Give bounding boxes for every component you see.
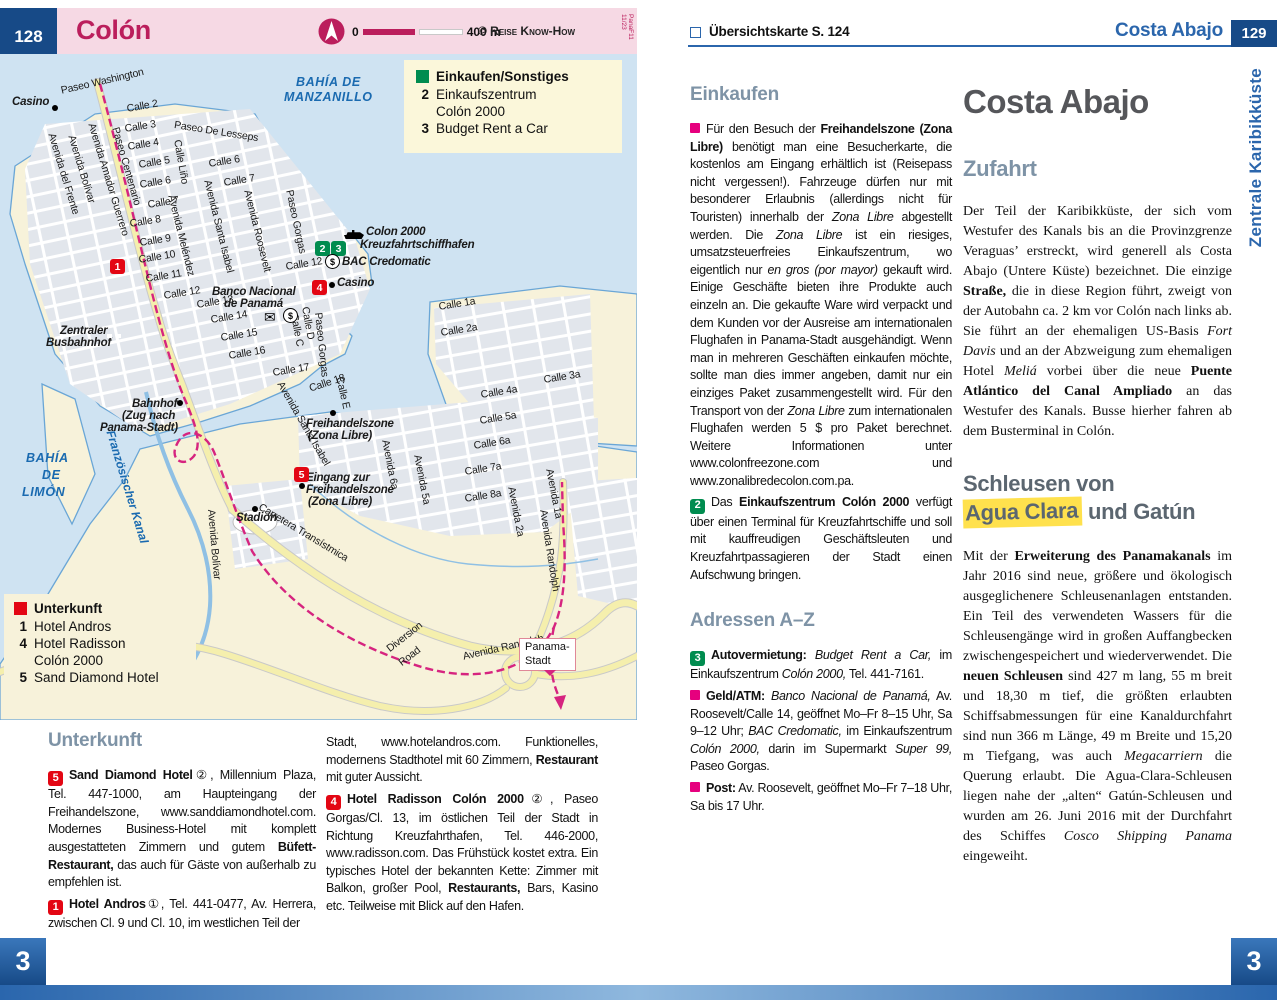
map-marker-1: 1 <box>110 259 125 274</box>
item-marker-5: 5 <box>48 771 63 786</box>
page-number-left: 128 <box>0 8 57 54</box>
bullet-square-icon <box>690 690 700 700</box>
map-label: Calle 3 <box>124 119 157 135</box>
legend-item: 2Einkaufszentrum Colón 2000 <box>416 86 612 120</box>
map-label: Avenida Roosevelt <box>241 189 272 273</box>
map-label: Calle 7a <box>464 461 502 478</box>
einkaufen-column: Einkaufen Für den Besuch der Freihandels… <box>690 84 952 819</box>
map-label: Paseo Gorgas <box>312 312 330 378</box>
map-label: Calle 8a <box>464 488 502 505</box>
poi-dot <box>329 282 335 288</box>
legend-lodging-title: Unterkunft <box>14 600 188 617</box>
map-label: Calle 3a <box>543 369 581 386</box>
map-label: Paseo De Lesseps <box>173 120 259 144</box>
map-label: Avenida 5a <box>411 454 431 506</box>
map-label: Freihandelszone <box>306 484 394 496</box>
item-marker-2: 2 <box>690 499 705 514</box>
paragraph: 3Autovermietung: Budget Rent a Car, im E… <box>690 647 952 684</box>
map-label: Eingang zur <box>306 472 370 484</box>
atm-icon: $ <box>283 308 298 323</box>
right-page-header: Übersichtskarte S. 124 Costa Abajo <box>688 20 1231 47</box>
map-label: Avenida Bolívar <box>205 509 222 580</box>
map-label: Calle Liño <box>171 139 190 185</box>
schleusen-heading: Schleusen von Agua Clara und Gatún <box>963 470 1232 527</box>
map-label: Calle 10 <box>138 249 176 266</box>
map-label: Calle 6 <box>139 175 172 191</box>
post-icon: ✉ <box>264 310 276 324</box>
einkaufen-heading: Einkaufen <box>690 84 952 106</box>
adressen-heading: Adressen A–Z <box>690 610 952 632</box>
map-label: Zentraler <box>60 325 107 337</box>
chapter-title: Costa Abajo <box>963 84 1232 120</box>
overview-map-link: Übersichtskarte S. 124 <box>709 24 849 39</box>
chapter-number-right: 3 <box>1231 938 1277 985</box>
legend-lodging: Unterkunft 1Hotel Andros4Hotel Radisson … <box>4 594 196 694</box>
map-label: Calle 9 <box>139 233 172 249</box>
scale-segment-empty <box>419 29 463 35</box>
poi-dot <box>299 483 305 489</box>
map-label: Road <box>397 645 423 669</box>
paragraph: 2Das Einkaufszentrum Colón 2000 verfügt … <box>690 494 952 584</box>
costa-abajo-column: Costa Abajo Zufahrt Der Teil der Karibik… <box>963 84 1232 867</box>
map-copyright: © Reise Know-How <box>478 24 575 38</box>
bullet-square-icon <box>690 123 700 133</box>
page-number-right: 129 <box>1231 20 1277 47</box>
scale-start-label: 0 <box>352 25 359 39</box>
map-label: Calle 6 <box>208 154 241 170</box>
map-label: Calle 5a <box>479 410 517 427</box>
map-label: Französischer Kanal <box>104 429 150 545</box>
overview-map-icon <box>690 27 701 38</box>
map-label: Calle 7 <box>223 173 256 189</box>
map-label: Carretera Transístmica <box>256 502 349 564</box>
map-label: Calle 2 <box>126 99 159 115</box>
legend-item: 1Hotel Andros <box>14 618 188 635</box>
map-label: Calle 15 <box>220 327 258 344</box>
item-marker-1: 1 <box>48 900 63 915</box>
map-label: Calle 4a <box>480 384 518 401</box>
paragraph: Für den Besuch der Freihandelszone (Zona… <box>690 121 952 490</box>
map-label: Freihandelszone <box>306 418 394 430</box>
map-label: Calle 5 <box>138 155 171 171</box>
map-marker-4: 4 <box>312 280 327 295</box>
map-label: MANZANILLO <box>284 91 373 104</box>
shopping-square-icon <box>416 70 429 83</box>
header-rule <box>688 45 1231 47</box>
map-label: Avenida Randolph <box>537 509 561 592</box>
map-label: Calle 17 <box>272 362 310 379</box>
map-label: BAHÍA <box>26 452 69 465</box>
poi-dot <box>330 410 336 416</box>
map-label: Calle 14 <box>210 309 248 326</box>
north-arrow-icon <box>318 18 345 45</box>
map-label: (Zug nach <box>122 410 175 422</box>
map-label: Paseo Washington <box>60 67 145 97</box>
map-label: Kreuzfahrtschiffhafen <box>360 239 474 251</box>
map-label: Calle 1a <box>438 296 476 313</box>
map-label: Casino <box>12 96 49 108</box>
map-title: Colón <box>76 15 151 46</box>
map-label: Colon 2000 <box>366 226 425 238</box>
ship-icon <box>344 230 364 239</box>
bullet-square-icon <box>690 782 700 792</box>
map-label: Panama-Stadt) <box>100 422 178 434</box>
atm-icon: $ <box>325 254 340 269</box>
paragraph: 4Hotel Radisson Colón 2000②, Paseo Gorga… <box>326 791 598 916</box>
paragraph: Der Teil der Karibikküste, der sich vom … <box>963 202 1232 442</box>
map-label: Avenida 2a <box>505 486 525 538</box>
item-marker-3: 3 <box>690 651 705 666</box>
lodging-square-icon <box>14 602 27 615</box>
map-label: Paseo Gorgas <box>283 189 307 255</box>
legend-shopping-title: Einkaufen/Sonstiges <box>416 68 612 85</box>
map-label: BAC Credomatic <box>342 256 431 268</box>
map-label: Calle 2a <box>440 322 478 339</box>
bottom-chapter-bar <box>0 985 1277 1000</box>
unterkunft-heading: Unterkunft <box>48 730 316 752</box>
map-label: Bahnhof <box>132 398 177 410</box>
unterkunft-column-2: Stadt, www.hotelandros.com. Funktionelle… <box>326 734 598 920</box>
map-edition-code: PanaF11 11/23 <box>620 14 634 54</box>
poi-dot <box>177 400 183 406</box>
map-marker-5: 5 <box>294 467 309 482</box>
paragraph: Stadt, www.hotelandros.com. Funktionelle… <box>326 734 598 787</box>
zufahrt-heading: Zufahrt <box>963 156 1232 182</box>
left-page-header: 128 Colón 0 400 m © Reise Know-How PanaF… <box>0 8 637 54</box>
map-label: Calle 16 <box>228 345 266 362</box>
map-label: BAHÍA DE <box>296 76 361 89</box>
paragraph: Post: Av. Roosevelt, geöffnet Mo–Fr 7–18… <box>690 780 952 815</box>
city-map: BAHÍA DEMANZANILLOBAHÍADELIMÓNFranzösisc… <box>0 54 637 720</box>
map-label: Calle 12 <box>285 256 323 273</box>
paragraph: Geld/ATM: Banco Nacional de Panamá, Av. … <box>690 688 952 776</box>
unterkunft-column-1: Unterkunft 5Sand Diamond Hotel②, Millenn… <box>48 730 316 937</box>
map-label: Casino <box>337 277 374 289</box>
map-label: Calle 4 <box>127 137 160 153</box>
poi-dot <box>52 105 58 111</box>
legend-item: 5Sand Diamond Hotel <box>14 669 188 686</box>
map-marker-2: 2 <box>315 241 330 256</box>
map-label: Avenida 6a <box>379 439 399 491</box>
section-title: Costa Abajo <box>1115 20 1223 42</box>
paragraph: 1Hotel Andros①, Tel. 441-0477, Av. Herre… <box>48 896 316 933</box>
legend-item: 3Budget Rent a Car <box>416 120 612 137</box>
map-label: Calle E <box>333 376 351 410</box>
map-label: LIMÓN <box>22 486 65 499</box>
map-label: Avenida Santa Isabel <box>201 179 235 274</box>
item-marker-4: 4 <box>326 795 341 810</box>
map-label: Calle 8 <box>129 214 162 230</box>
chapter-number-left: 3 <box>0 938 46 985</box>
paragraph: Mit der Erweiterung des Panamakanals im … <box>963 547 1232 867</box>
map-label: Busbahnhof <box>46 337 111 349</box>
scale-segment-filled <box>363 29 415 35</box>
map-label: Calle 6a <box>473 435 511 452</box>
highlighted-text: Agua Clara <box>963 496 1083 528</box>
legend-item: 4Hotel Radisson Colón 2000 <box>14 635 188 669</box>
direction-sign-panama-stadt: Panama- Stadt <box>519 638 576 671</box>
paragraph: 5Sand Diamond Hotel②, Millennium Plaza, … <box>48 767 316 892</box>
map-label: DE <box>42 469 61 482</box>
chapter-side-tab: Zentrale Karibikküste <box>1246 68 1266 247</box>
poi-dot <box>252 506 258 512</box>
map-label: (Zona Libre) <box>308 496 372 508</box>
legend-shopping: Einkaufen/Sonstiges 2Einkaufszentrum Col… <box>404 60 622 153</box>
map-label: Calle 11 <box>145 268 182 285</box>
